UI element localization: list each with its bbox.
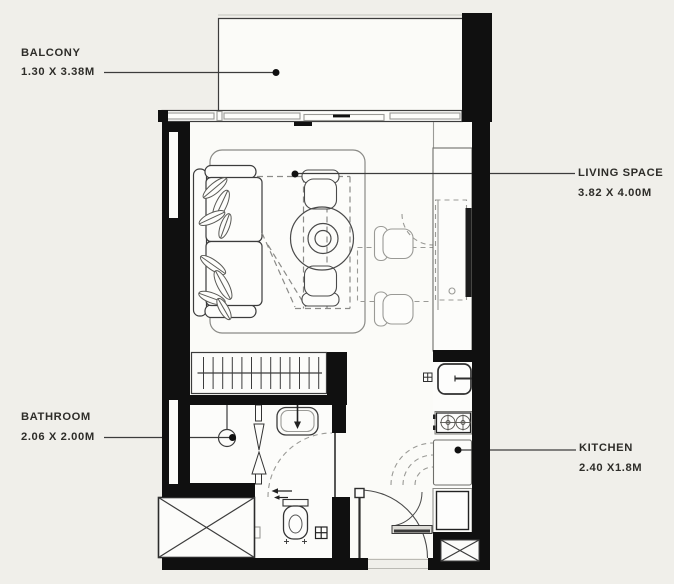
door-handle <box>333 115 350 118</box>
service-shaft <box>159 498 255 558</box>
living-space-label: LIVING SPACE <box>578 167 663 180</box>
kitchen-label: KITCHEN <box>579 442 633 455</box>
balcony-floor <box>218 18 462 110</box>
kitchen-shaft <box>441 540 479 561</box>
bottom-wall-left <box>162 558 368 570</box>
dining-chair-bottom <box>375 292 414 326</box>
kitchen-sink <box>438 364 472 394</box>
table-chair-bottom <box>302 266 339 306</box>
bathroom-sink <box>277 405 318 435</box>
living-space-dims: 3.82 X 4.00M <box>578 187 652 200</box>
bathroom-top-wall <box>162 395 347 405</box>
bathroom-label: BATHROOM <box>21 411 91 424</box>
floor-trap <box>316 527 328 539</box>
right-wall <box>472 122 490 570</box>
wardrobe <box>192 353 327 394</box>
table-chair-top <box>302 170 339 209</box>
stove <box>433 412 472 435</box>
kitchen-dims: 2.40 X1.8M <box>579 462 642 475</box>
floor-plan-drawing <box>0 0 674 584</box>
balcony-dims: 1.30 X 3.38M <box>21 66 95 79</box>
counter-backsplash <box>466 208 472 297</box>
drain-symbol <box>424 373 433 382</box>
kitchen-base-counter <box>434 440 472 485</box>
wall-niche-top <box>169 132 178 218</box>
fridge <box>433 489 472 533</box>
right-wall-upper <box>462 13 492 122</box>
kitchen-counter <box>433 148 472 351</box>
floor-plan: BALCONY 1.30 X 3.38M LIVING SPACE 3.82 X… <box>0 0 674 584</box>
door-hinge <box>355 489 364 498</box>
balcony-label: BALCONY <box>21 47 81 60</box>
wall-niche-bottom <box>169 400 178 484</box>
bathroom-dims: 2.06 X 2.00M <box>21 431 95 444</box>
